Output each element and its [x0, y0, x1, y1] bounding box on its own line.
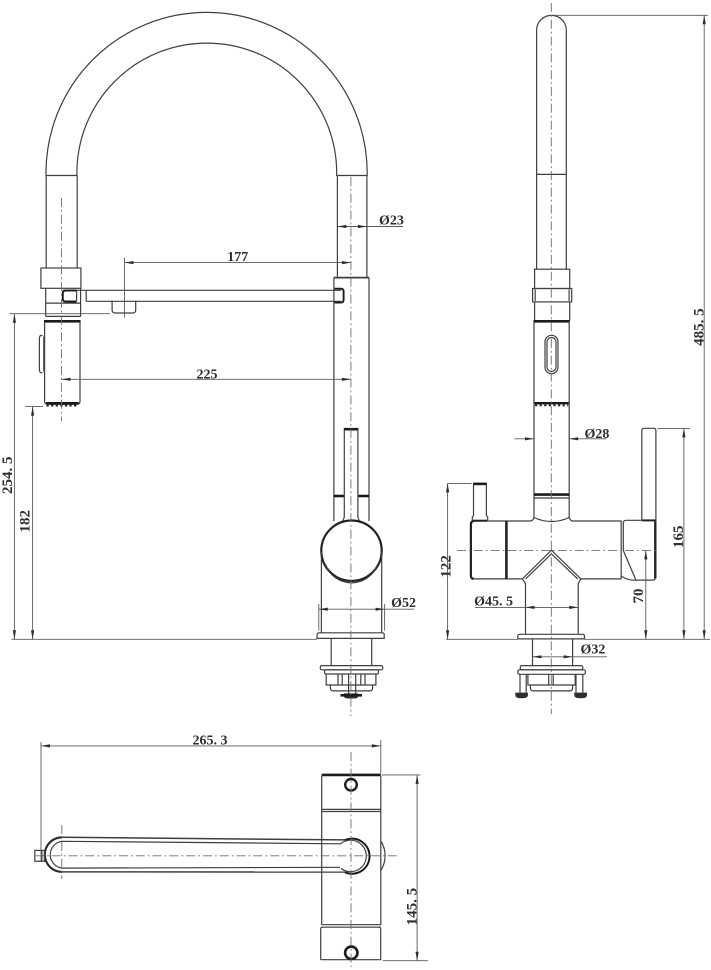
svg-text:265. 3: 265. 3: [193, 733, 228, 748]
svg-text:Ø52: Ø52: [391, 596, 416, 611]
svg-text:225: 225: [197, 368, 218, 383]
svg-text:165: 165: [671, 525, 687, 548]
svg-text:177: 177: [227, 250, 248, 265]
svg-text:Ø28: Ø28: [585, 427, 610, 442]
svg-text:70: 70: [631, 589, 647, 604]
svg-text:145. 5: 145. 5: [404, 888, 420, 926]
svg-text:485. 5: 485. 5: [692, 308, 708, 346]
svg-text:122: 122: [439, 555, 455, 578]
svg-text:Ø32: Ø32: [580, 643, 605, 658]
svg-text:Ø45. 5: Ø45. 5: [474, 594, 513, 609]
svg-text:Ø23: Ø23: [379, 213, 404, 228]
svg-text:182: 182: [18, 510, 34, 533]
svg-text:254. 5: 254. 5: [0, 456, 16, 494]
